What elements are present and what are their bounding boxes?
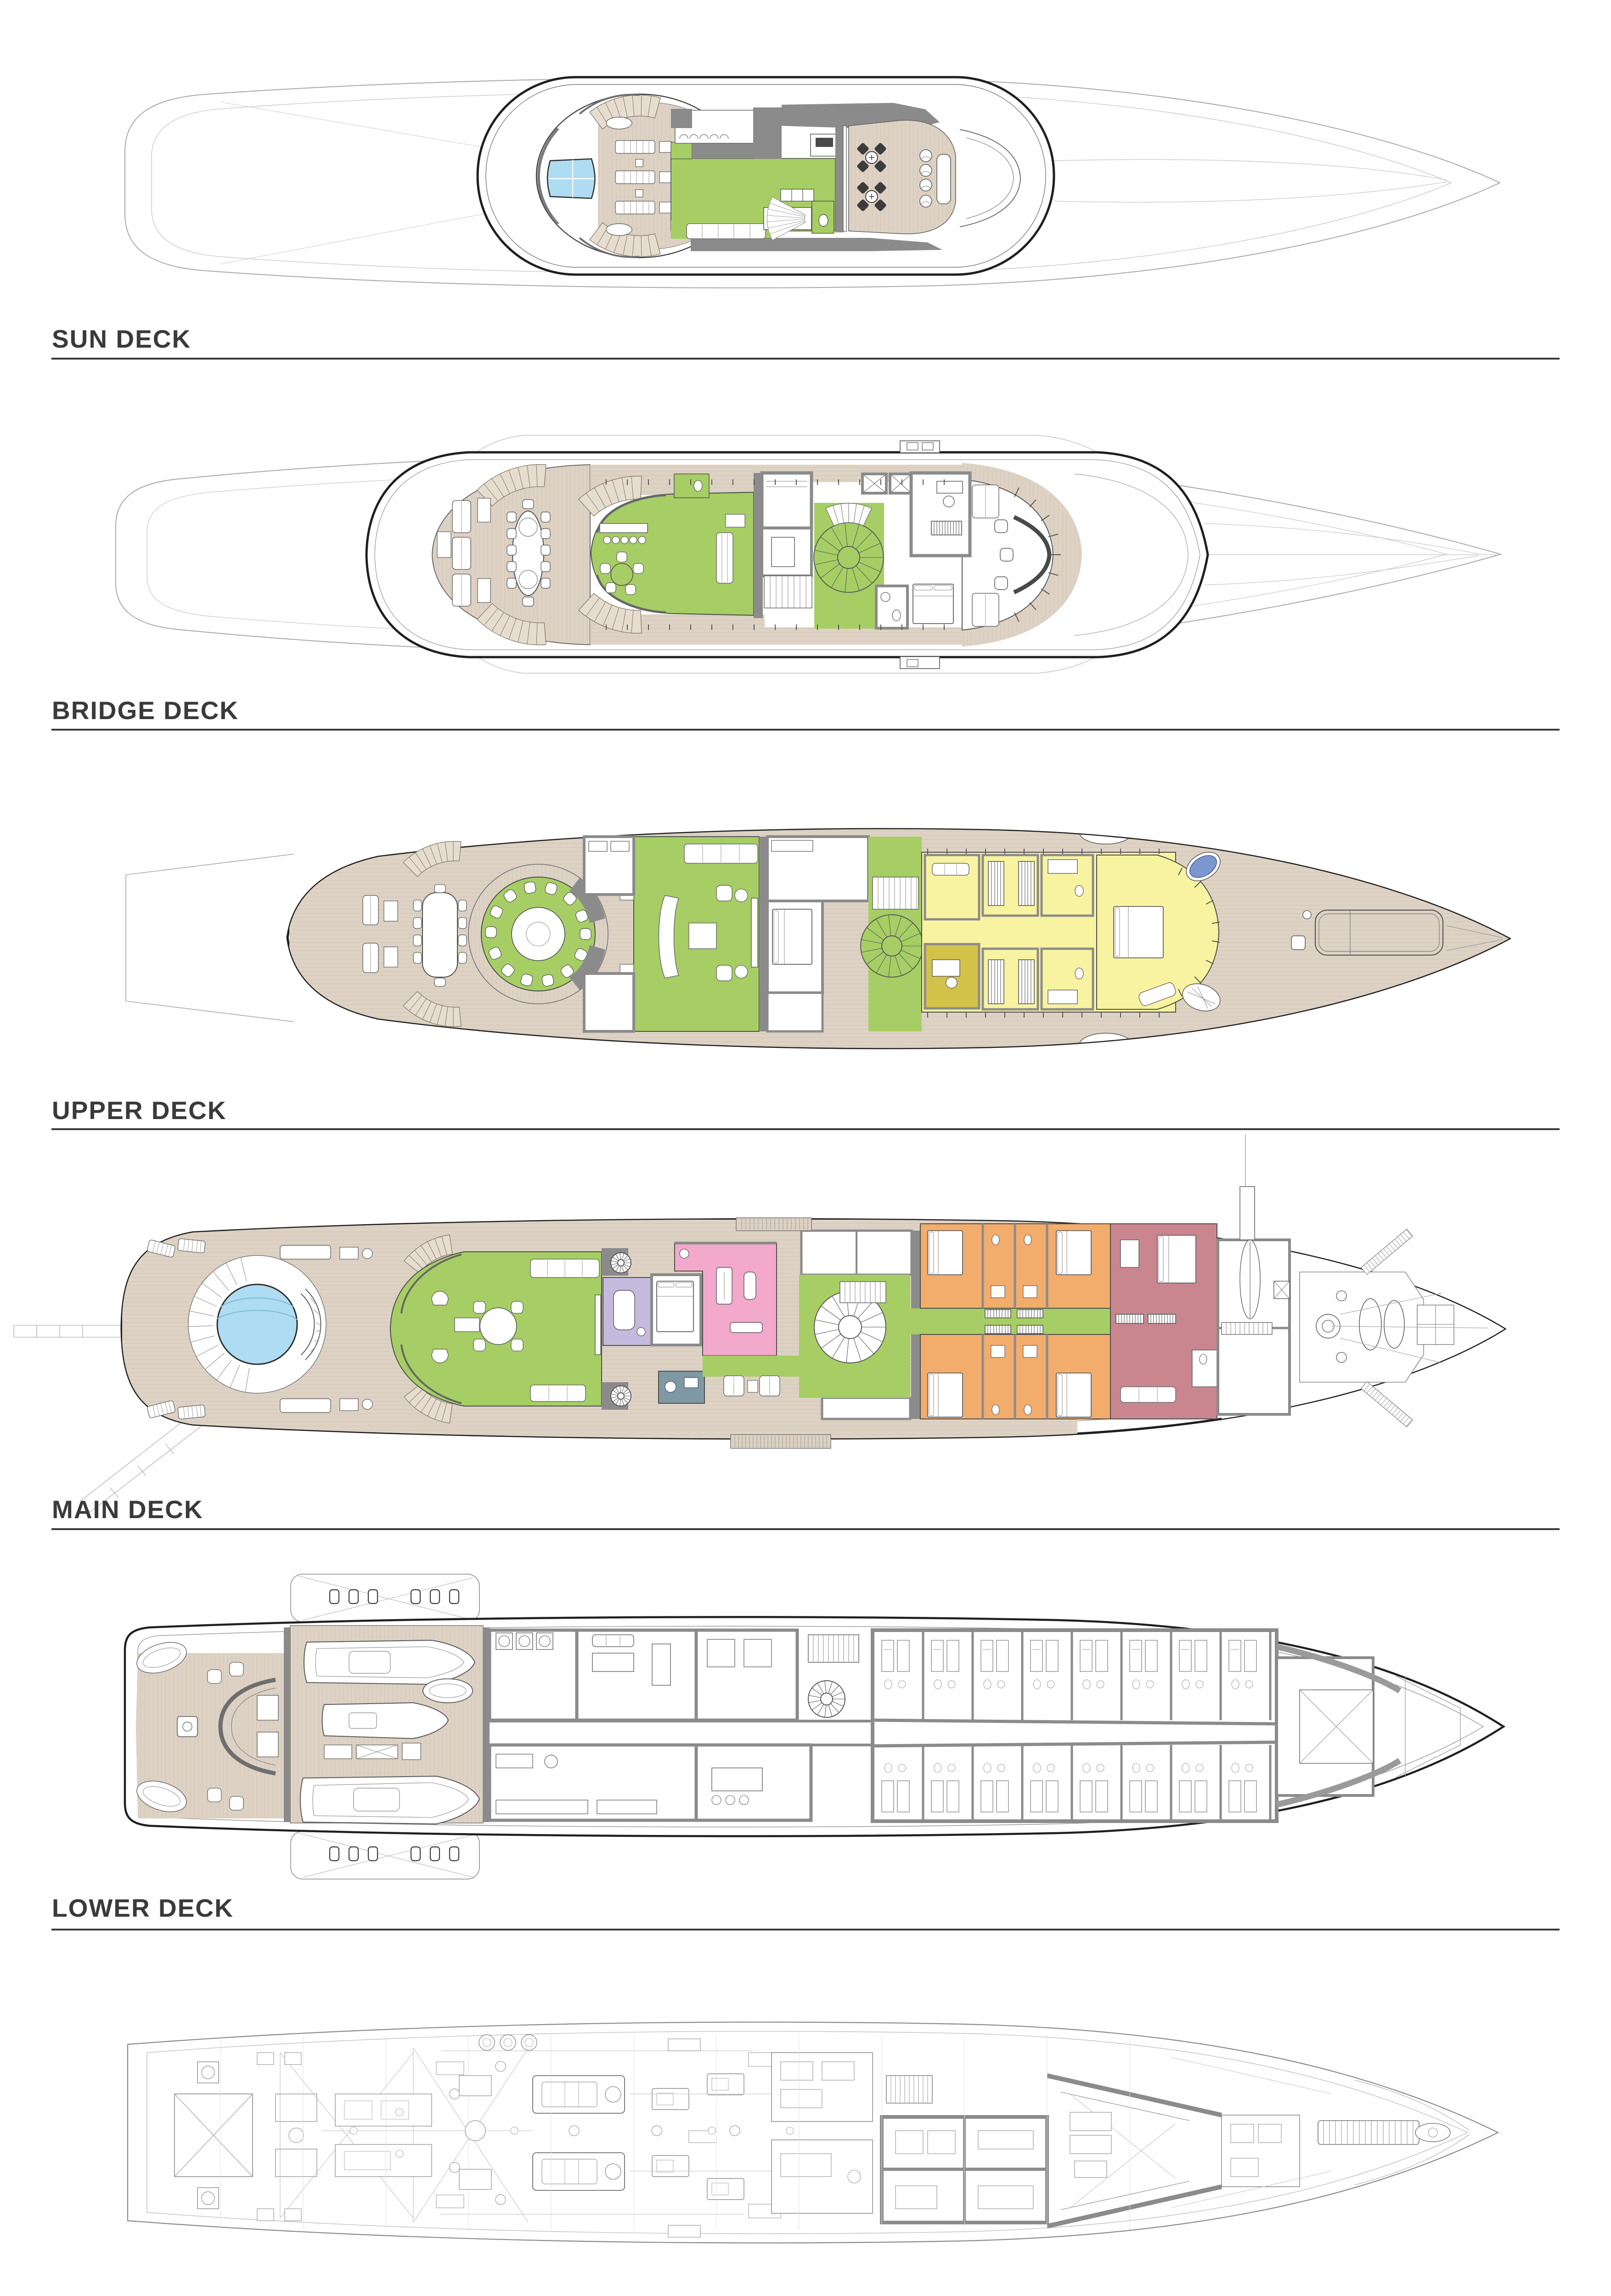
svg-text:SUN DECK: SUN DECK (52, 325, 191, 353)
svg-text:LOWER DECK: LOWER DECK (52, 1894, 234, 1922)
svg-text:UPPER DECK: UPPER DECK (52, 1096, 227, 1125)
svg-text:BRIDGE DECK: BRIDGE DECK (52, 696, 239, 725)
svg-text:MAIN DECK: MAIN DECK (52, 1495, 203, 1524)
